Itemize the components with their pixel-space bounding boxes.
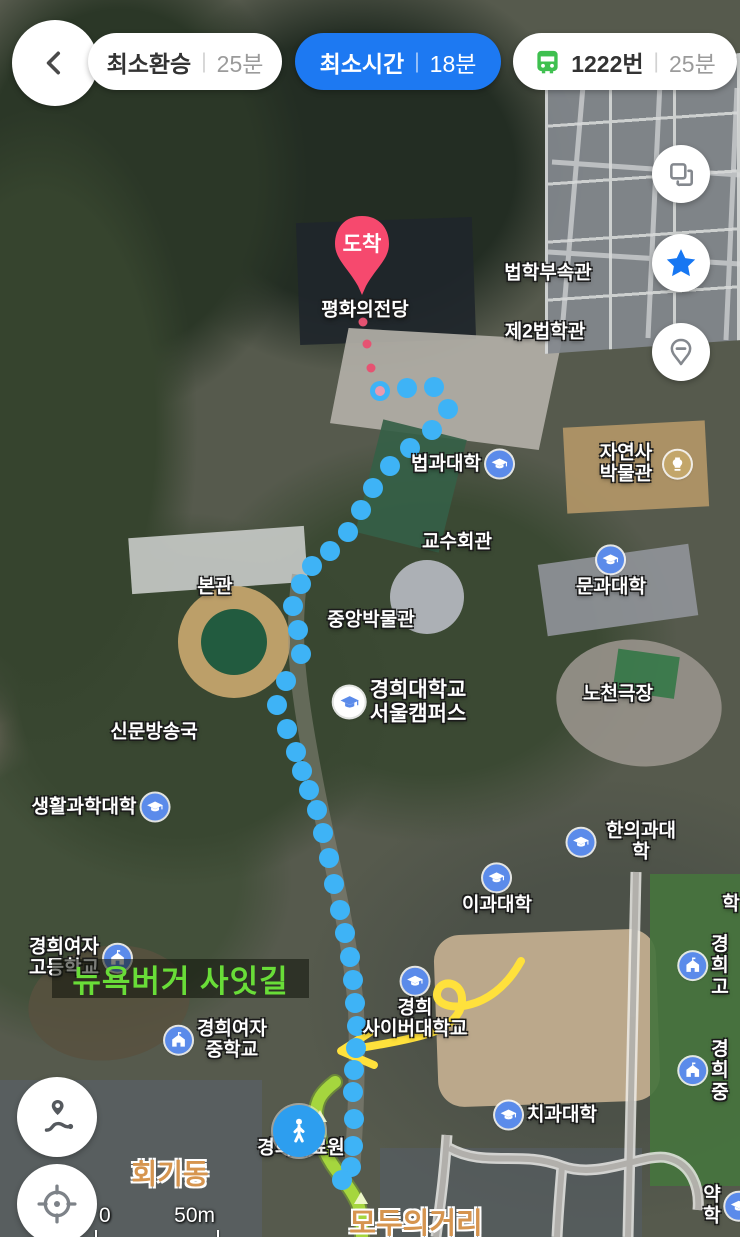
route-dot xyxy=(397,378,417,398)
route-dot xyxy=(292,761,312,781)
poi-label[interactable]: 경희 사이버대학교 xyxy=(363,968,468,1041)
scale-bar-line xyxy=(95,1230,219,1237)
poi-label-text: 한의과대학 xyxy=(600,821,683,864)
route-option-1222번[interactable]: 1222번|25분 xyxy=(513,33,737,90)
pin-trail-dot xyxy=(367,364,376,373)
poi-label[interactable]: 이과대학 xyxy=(462,864,532,915)
favorite-button[interactable] xyxy=(652,234,710,292)
poi-label[interactable]: 자연사박물관 xyxy=(593,443,691,486)
college-icon xyxy=(568,829,595,856)
poi-label-text: 경희 사이버대학교 xyxy=(363,998,468,1041)
poi-label-text: 제2법학관 xyxy=(505,321,586,342)
route-option-label: 최소시간 xyxy=(320,45,405,79)
museum-icon xyxy=(664,451,691,478)
route-dot xyxy=(340,947,360,967)
route-dot xyxy=(363,478,383,498)
poi-label[interactable]: 경희여자 중학교 xyxy=(165,1019,267,1062)
poi-label-text: 회기동 xyxy=(131,1158,208,1189)
poi-label-text: 경희고 xyxy=(711,934,728,998)
poi-label[interactable]: 교수회관 xyxy=(422,531,492,552)
school-icon xyxy=(679,1057,706,1084)
route-dot xyxy=(299,780,319,800)
route-dot xyxy=(338,522,358,542)
poi-label[interactable]: 경희대학교 서울캠퍼스 xyxy=(334,678,467,725)
poi-label-text: 모두의거리 xyxy=(349,1208,482,1237)
poi-label-text: 평화의전당 xyxy=(321,299,408,320)
route-dot xyxy=(288,620,308,640)
route-dot xyxy=(319,848,339,868)
route-dot xyxy=(283,596,303,616)
poi-label-text: 경희여자 중학교 xyxy=(197,1019,267,1062)
route-dot xyxy=(313,823,333,843)
poi-label[interactable]: 신문방송국 xyxy=(110,721,197,742)
star-icon xyxy=(664,246,698,280)
poi-label[interactable]: 치과대학 xyxy=(495,1102,597,1129)
scale-zero: 0 xyxy=(99,1204,111,1228)
crosshair-icon xyxy=(35,1182,79,1226)
fountain-circle xyxy=(178,586,290,698)
poi-label[interactable]: 생활과학대학 xyxy=(32,794,169,821)
hide-pins-button[interactable] xyxy=(652,323,710,381)
route-dot xyxy=(307,800,327,820)
chevron-left-icon xyxy=(40,48,70,78)
poi-label-text: 치과대학 xyxy=(527,1104,597,1125)
back-button[interactable] xyxy=(12,20,98,106)
poi-label-text: 약학 xyxy=(703,1185,720,1228)
urban-grid xyxy=(545,53,740,354)
route-option-time: 25분 xyxy=(669,45,716,79)
route-dot xyxy=(277,719,297,739)
college-icon xyxy=(486,451,513,478)
poi-label[interactable]: 한의과대학 xyxy=(568,821,683,864)
college-icon xyxy=(401,968,428,995)
route-dot xyxy=(286,742,306,762)
route-dot xyxy=(335,923,355,943)
route-tool-button[interactable] xyxy=(17,1077,97,1157)
route-dot xyxy=(346,1038,366,1058)
route-dot xyxy=(291,574,311,594)
school-icon xyxy=(679,952,706,979)
college-icon xyxy=(495,1102,522,1129)
route-icon xyxy=(36,1096,78,1138)
route-option-label: 최소환승 xyxy=(107,45,192,79)
poi-label-text: 학 xyxy=(722,893,739,914)
route-dot xyxy=(332,1170,352,1190)
poi-label-text: 교수회관 xyxy=(422,531,492,552)
poi-label[interactable]: 경희고 xyxy=(679,934,728,998)
poi-label-text: 중앙박물관 xyxy=(327,609,414,630)
scale-distance: 50m xyxy=(174,1204,215,1228)
college-icon xyxy=(141,794,168,821)
poi-label-text: 경희중 xyxy=(711,1039,728,1103)
route-dot xyxy=(344,1060,364,1080)
pin-trail-dot xyxy=(363,340,372,349)
poi-label-text: 생활과학대학 xyxy=(32,796,137,817)
route-option-time: 18분 xyxy=(430,45,477,79)
route-dot xyxy=(324,874,344,894)
layers-icon xyxy=(666,159,696,189)
route-dot xyxy=(351,500,371,520)
college-icon xyxy=(726,1193,740,1220)
route-option-최소시간[interactable]: 최소시간|18분 xyxy=(295,33,501,90)
route-dot xyxy=(343,1136,363,1156)
poi-label[interactable]: 평화의전당 xyxy=(321,299,408,320)
route-dot xyxy=(276,671,296,691)
route-dot xyxy=(330,900,350,920)
poi-label[interactable]: 중앙박물관 xyxy=(327,609,414,630)
scale-bar: 0 50m xyxy=(95,1204,219,1237)
route-dot xyxy=(320,541,340,561)
destination-pin[interactable]: 도착 xyxy=(330,212,394,298)
divider: | xyxy=(654,50,659,74)
poi-label[interactable]: 모두의거리 xyxy=(349,1208,482,1237)
poi-label-text: 노천극장 xyxy=(583,683,653,704)
poi-label[interactable]: 본관 xyxy=(198,576,233,597)
pin-minus-icon xyxy=(665,336,697,368)
poi-label-text: 이과대학 xyxy=(462,894,532,915)
poi-label[interactable]: 학 xyxy=(722,893,739,914)
poi-label-text: 신문방송국 xyxy=(110,721,197,742)
school-icon xyxy=(165,1027,192,1054)
college-icon xyxy=(483,864,510,891)
poi-label-text: 법과대학 xyxy=(411,453,481,474)
route-dot xyxy=(422,420,442,440)
walker-badge[interactable] xyxy=(273,1105,325,1157)
my-location-button[interactable] xyxy=(17,1164,97,1237)
college-icon xyxy=(334,687,365,718)
map-app: 평화의전당법학부속관제2법학관법과대학자연사박물관교수회관문과대학본관중앙박물관… xyxy=(0,0,740,1237)
pin-label: 도착 xyxy=(330,228,394,258)
divider: | xyxy=(201,50,206,74)
poi-label-text: 경희대학교 서울캠퍼스 xyxy=(370,678,467,725)
route-dot xyxy=(302,556,322,576)
poi-label[interactable]: 노천극장 xyxy=(583,683,653,704)
street-annotation: 뉴욕버거 사잇길 xyxy=(52,959,309,998)
route-dot xyxy=(380,456,400,476)
route-dot xyxy=(267,695,287,715)
route-dot xyxy=(291,644,311,664)
poi-label[interactable]: 제2법학관 xyxy=(505,321,586,342)
route-dot xyxy=(343,1082,363,1102)
poi-label[interactable]: 회기동 xyxy=(131,1158,208,1189)
divider: | xyxy=(414,50,419,74)
route-option-label: 1222번 xyxy=(571,45,643,79)
route-option-time: 25분 xyxy=(217,45,264,79)
poi-label-text: 법학부속관 xyxy=(504,262,591,283)
route-dot xyxy=(344,1109,364,1129)
poi-label-text: 문과대학 xyxy=(576,576,646,597)
poi-label[interactable]: 법과대학 xyxy=(411,451,513,478)
poi-label[interactable]: 경희중 xyxy=(679,1039,728,1103)
route-dot xyxy=(343,970,363,990)
green-courts xyxy=(650,874,740,1186)
walking-person-icon xyxy=(284,1116,314,1146)
route-dot xyxy=(438,399,458,419)
route-dot xyxy=(424,377,444,397)
poi-label-text: 자연사박물관 xyxy=(593,443,659,486)
street-annotation-text: 뉴욕버거 사잇길 xyxy=(72,956,288,1001)
poi-label[interactable]: 법학부속관 xyxy=(504,262,591,283)
route-option-최소환승[interactable]: 최소환승|25분 xyxy=(88,33,282,90)
college-icon xyxy=(597,546,624,573)
poi-label[interactable]: 문과대학 xyxy=(576,546,646,597)
route-dot xyxy=(370,381,390,401)
map-layers-button[interactable] xyxy=(652,145,710,203)
poi-label[interactable]: 약학 xyxy=(703,1185,740,1228)
poi-label-text: 본관 xyxy=(198,576,233,597)
